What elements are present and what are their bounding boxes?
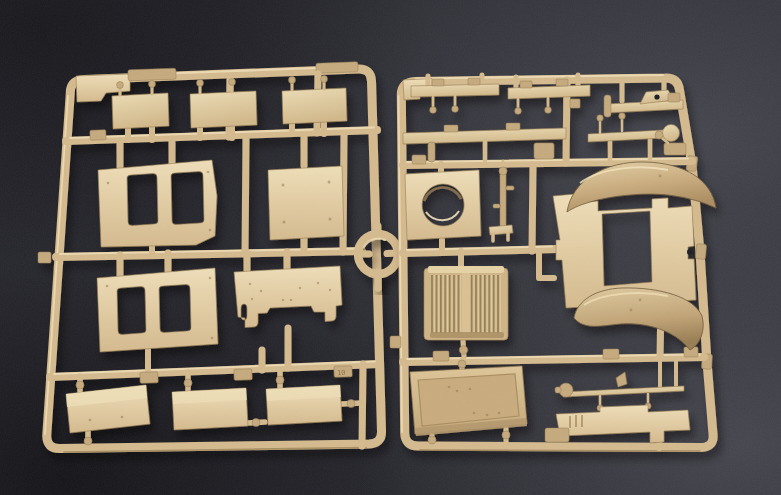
- film-grain-overlay: [0, 0, 781, 495]
- sprue-photo: 10: [0, 0, 781, 495]
- photo-canvas: 10: [0, 0, 781, 495]
